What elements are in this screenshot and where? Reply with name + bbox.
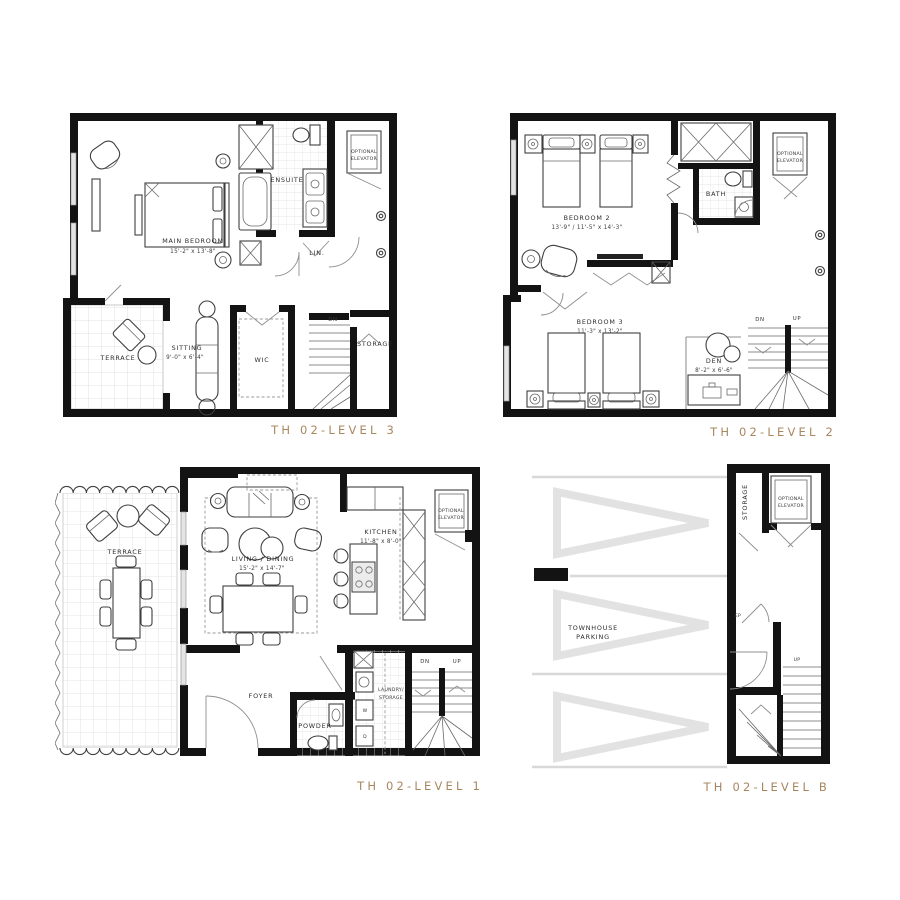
window xyxy=(71,223,76,275)
window xyxy=(181,512,186,545)
terrace-edge xyxy=(55,493,60,750)
storage-door xyxy=(739,533,758,551)
elevator-label-2: ELEVATOR xyxy=(438,515,465,521)
ep-label: EP xyxy=(735,613,741,619)
bedroom3-doors xyxy=(543,292,587,309)
window xyxy=(504,346,509,401)
optional-elevator: OPTIONAL ELEVATOR xyxy=(347,131,381,189)
floorplan-level-2-drawing: OPTIONAL ELEVATOR xyxy=(503,113,836,417)
folding-door xyxy=(667,155,680,203)
elevator-label-2: ELEVATOR xyxy=(778,503,805,509)
laundry-label-1: LAUNDRY/ xyxy=(378,687,404,693)
ensuite-label: ENSUITE xyxy=(271,176,304,184)
stairs-dn-label: DN xyxy=(328,317,337,323)
stairs-down xyxy=(309,325,379,409)
plan-level-1: OPTIONAL ELEVATOR xyxy=(55,460,483,793)
foyer-label: FOYER xyxy=(249,692,274,700)
stairs-up-label: UP xyxy=(794,657,801,663)
wic-doors xyxy=(246,312,279,325)
sitting-dims: 9'-0" x 6'-4" xyxy=(166,355,204,361)
stairs xyxy=(412,668,472,756)
plan-title-level-2: TH 02-LEVEL 2 xyxy=(503,425,836,439)
window xyxy=(511,140,516,195)
floorplan-level-1-drawing: OPTIONAL ELEVATOR xyxy=(55,460,483,776)
elevator-label-1: OPTIONAL xyxy=(351,149,377,155)
stairs xyxy=(748,325,828,409)
plan-title-level-b: TH 02-LEVEL B xyxy=(525,780,830,794)
plan-level-b: STORAGE OPTIONAL ELEVATOR EP xyxy=(525,462,830,794)
laundry-label-2: STORAGE xyxy=(379,695,403,701)
door-swing xyxy=(329,237,359,267)
hall-closet xyxy=(681,123,751,161)
main-bedroom-label: MAIN BEDROOM xyxy=(162,237,224,245)
powder-label: POWDER xyxy=(298,722,331,730)
elevator-label-1: OPTIONAL xyxy=(438,508,464,514)
window xyxy=(181,644,186,685)
storage-label: STORAGE xyxy=(357,340,393,348)
door-swing xyxy=(541,293,563,315)
bedroom3-label: BEDROOM 3 xyxy=(577,318,624,326)
elevator-label-2: ELEVATOR xyxy=(777,158,804,164)
entry-door xyxy=(206,696,258,748)
column-posts xyxy=(377,212,386,258)
wic-label: WIC xyxy=(254,356,269,364)
plan-level-3: OPTIONAL ELEVATOR xyxy=(63,113,397,437)
sitting-label: SITTING xyxy=(172,344,203,352)
hedge-bottom xyxy=(60,748,179,755)
closet-door xyxy=(320,656,342,690)
den-label: DEN xyxy=(706,357,722,365)
kitchen-label: KITCHEN xyxy=(364,528,397,536)
storage-label: STORAGE xyxy=(741,484,749,520)
bedroom2-label: BEDROOM 2 xyxy=(564,214,611,222)
living-dining-dims: 15'-2" x 14'-7" xyxy=(239,566,285,572)
stairs-dn-label: DN xyxy=(420,659,429,665)
terrace-door xyxy=(105,285,121,301)
stairs-dn-label: DN xyxy=(755,317,764,323)
plan-level-2: OPTIONAL ELEVATOR xyxy=(503,113,836,439)
stairs-up-label: UP xyxy=(793,316,802,322)
ep-door: EP xyxy=(735,604,769,623)
bedroom3-furniture xyxy=(527,333,659,409)
parking-label-1: TOWNHOUSE xyxy=(567,624,618,632)
floorplan-level-b-drawing: STORAGE OPTIONAL ELEVATOR EP xyxy=(525,462,830,774)
door-swing xyxy=(275,252,299,276)
hedge-top xyxy=(60,486,179,493)
bedroom2-dims: 13'-9" / 11'-5" x 14'-3" xyxy=(552,225,623,231)
optional-elevator: OPTIONAL ELEVATOR xyxy=(771,476,811,547)
elevator-label-2: ELEVATOR xyxy=(351,156,378,162)
kitchen-dims: 11'-8" x 8'-0" xyxy=(360,539,402,545)
plan-title-level-1: TH 02-LEVEL 1 xyxy=(55,779,483,793)
parking-label-2: PARKING xyxy=(576,633,610,641)
den-dims: 8'-2" x 6'-6" xyxy=(695,368,733,374)
window xyxy=(71,153,76,205)
floorplan-sheet: OPTIONAL ELEVATOR xyxy=(0,0,900,900)
living-dining-label: LIVING / DINING xyxy=(232,555,295,563)
bedroom2-furniture xyxy=(522,135,648,280)
window xyxy=(181,570,186,608)
linen-label: LIN. xyxy=(309,249,324,257)
washer-label: W xyxy=(363,708,368,714)
column-posts xyxy=(816,231,825,276)
plan-title-level-3: TH 02-LEVEL 3 xyxy=(63,423,397,437)
elevator-label-1: OPTIONAL xyxy=(777,151,803,157)
optional-elevator: OPTIONAL ELEVATOR xyxy=(773,133,807,199)
elevator-label-1: OPTIONAL xyxy=(778,496,804,502)
main-bedroom-dims: 15'-2" x 13'-8" xyxy=(170,249,216,255)
terrace-label: TERRACE xyxy=(107,548,143,556)
dryer-label: D xyxy=(363,734,367,740)
stairs-up-label: UP xyxy=(453,659,462,665)
terrace-label: TERRACE xyxy=(100,354,136,362)
bath-label: BATH xyxy=(706,190,726,198)
bedroom3-dims: 11'-3" x 13'-2" xyxy=(577,329,623,335)
floorplan-level-3-drawing: OPTIONAL ELEVATOR xyxy=(63,113,397,417)
